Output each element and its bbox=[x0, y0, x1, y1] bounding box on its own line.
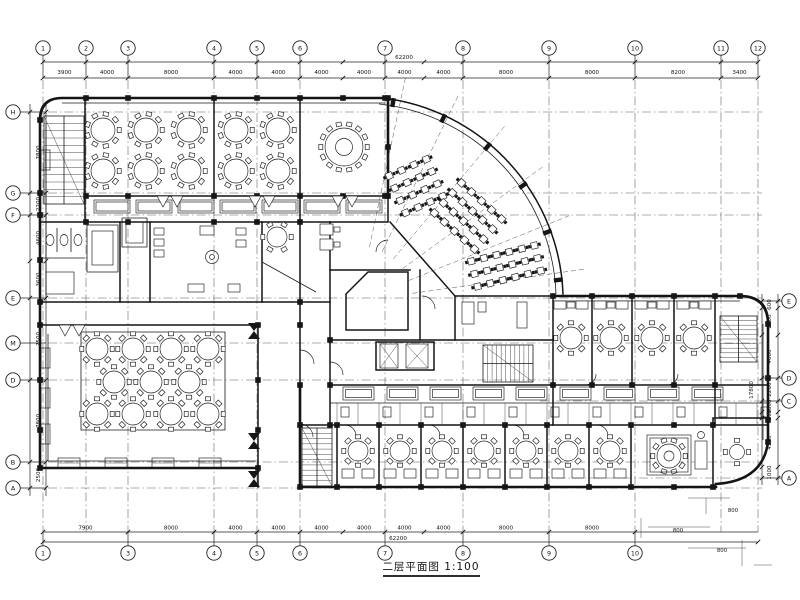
corridor-floor-mat bbox=[692, 387, 723, 400]
vestibule-fixture bbox=[509, 407, 517, 417]
grid-bubble-left-M: M bbox=[6, 336, 20, 350]
svg-text:D: D bbox=[787, 374, 792, 382]
grid-bubble-top-11: 11 bbox=[714, 41, 728, 55]
sofa bbox=[635, 301, 647, 309]
lounge-furniture bbox=[478, 302, 486, 312]
elevator-car bbox=[406, 344, 428, 368]
corridor-floor-mat bbox=[430, 387, 461, 400]
lounge-furniture bbox=[200, 226, 214, 235]
column bbox=[628, 484, 634, 490]
lounge-furniture bbox=[334, 227, 340, 232]
dim-label-bottom: 4000 bbox=[271, 526, 286, 532]
lounge-furniture bbox=[188, 284, 204, 292]
dim-label-top: 8000 bbox=[585, 70, 600, 76]
vestibule-fixture bbox=[425, 407, 433, 417]
column bbox=[586, 484, 592, 490]
grid-bubble-left-E: E bbox=[6, 291, 20, 305]
dim-label-top: 8000 bbox=[499, 70, 514, 76]
column bbox=[550, 293, 556, 299]
round-dining-table bbox=[116, 332, 150, 366]
lounge-furniture bbox=[228, 284, 240, 292]
column bbox=[589, 293, 595, 299]
window bbox=[58, 458, 80, 468]
sofa bbox=[362, 469, 374, 478]
drawing-title: 二层平面图 1:100 bbox=[382, 561, 479, 573]
column bbox=[37, 377, 43, 383]
round-dining-table bbox=[154, 397, 188, 431]
door-swing-arc bbox=[330, 362, 343, 375]
column bbox=[37, 465, 43, 471]
lounge-furniture bbox=[320, 224, 333, 235]
column bbox=[460, 484, 466, 490]
dim-label-bottom: 4000 bbox=[397, 526, 412, 532]
svg-text:9: 9 bbox=[547, 549, 551, 557]
round-dining-table bbox=[426, 435, 458, 467]
svg-text:1: 1 bbox=[41, 44, 45, 52]
vestibule-fixture bbox=[551, 407, 559, 417]
dim-label-bottom: 4000 bbox=[314, 526, 329, 532]
dim-total-right: 17800 bbox=[749, 381, 755, 399]
dimension-annotations: 3900400080004000400040004000400040008000… bbox=[6, 41, 796, 560]
column bbox=[550, 382, 556, 388]
round-dining-table bbox=[80, 397, 114, 431]
dim-label-top: 4000 bbox=[436, 70, 451, 76]
column bbox=[255, 465, 261, 471]
toilet-fixture bbox=[46, 235, 54, 246]
dim-label-top: 8000 bbox=[164, 70, 179, 76]
round-dining-table bbox=[172, 365, 206, 399]
svg-text:4: 4 bbox=[212, 549, 216, 557]
sofa bbox=[699, 301, 711, 309]
column bbox=[502, 484, 508, 490]
grid-bubble-bottom-1: 1 bbox=[36, 546, 50, 560]
svg-text:G: G bbox=[11, 189, 16, 197]
vestibule-fixture bbox=[593, 407, 601, 417]
toilet-fixture bbox=[60, 235, 68, 246]
column bbox=[255, 427, 261, 433]
corridor-booth-window bbox=[136, 200, 172, 213]
column bbox=[765, 439, 771, 445]
svg-text:H: H bbox=[11, 108, 16, 116]
sofa bbox=[677, 301, 689, 309]
column bbox=[765, 321, 771, 327]
lounge-furniture bbox=[154, 239, 164, 246]
sofa bbox=[614, 469, 626, 478]
column bbox=[125, 193, 131, 199]
corridor-floor-mat bbox=[604, 387, 635, 400]
svg-text:6: 6 bbox=[298, 44, 302, 52]
staircase bbox=[483, 345, 533, 382]
lounge-furniture bbox=[334, 242, 340, 247]
column bbox=[37, 299, 43, 305]
column bbox=[211, 219, 217, 225]
lounge-furniture bbox=[154, 250, 164, 257]
column bbox=[340, 95, 346, 101]
curtain-wall-mullion bbox=[483, 142, 492, 152]
grid-bubble-top-4: 4 bbox=[207, 41, 221, 55]
column bbox=[327, 337, 333, 343]
corridor-booth-window bbox=[94, 200, 130, 213]
svg-text:A: A bbox=[11, 484, 16, 492]
lounge-furniture bbox=[154, 228, 164, 235]
column bbox=[37, 257, 43, 263]
round-dining-table bbox=[134, 365, 168, 399]
toilet-fixture bbox=[74, 235, 82, 246]
svg-text:8: 8 bbox=[461, 549, 465, 557]
round-dining-table bbox=[85, 112, 121, 149]
corridor-floor-mat bbox=[560, 387, 591, 400]
grid-bubble-right-D: D bbox=[782, 371, 796, 385]
column bbox=[297, 193, 303, 199]
column bbox=[37, 322, 43, 328]
svg-text:2: 2 bbox=[84, 44, 88, 52]
corridor-booth-window bbox=[304, 200, 340, 213]
column bbox=[297, 422, 303, 428]
svg-text:B: B bbox=[11, 458, 15, 466]
sofa bbox=[616, 301, 628, 309]
detail-dim-label: 800 bbox=[728, 508, 739, 514]
round-dining-table bbox=[85, 153, 121, 190]
round-dining-table bbox=[319, 122, 369, 172]
sofa bbox=[384, 469, 396, 478]
svg-text:8: 8 bbox=[461, 44, 465, 52]
sofa bbox=[468, 469, 480, 478]
lounge-furniture bbox=[236, 228, 246, 235]
round-dining-table bbox=[594, 435, 626, 467]
dim-total-bottom: 62200 bbox=[389, 536, 407, 542]
cabinet bbox=[126, 222, 143, 243]
svg-text:12: 12 bbox=[754, 44, 762, 52]
sofa bbox=[342, 469, 354, 478]
trellis-feature bbox=[346, 272, 408, 330]
grid-bubble-left-D: D bbox=[6, 373, 20, 387]
staircase bbox=[720, 316, 757, 362]
sofa bbox=[594, 469, 606, 478]
column bbox=[297, 382, 303, 388]
dim-label-bottom: 4000 bbox=[357, 526, 372, 532]
round-dining-table bbox=[552, 435, 584, 467]
dim-label-top: 4000 bbox=[397, 70, 412, 76]
door-leaf bbox=[59, 325, 71, 336]
round-dining-table bbox=[384, 435, 416, 467]
round-dining-table bbox=[468, 435, 500, 467]
svg-text:3: 3 bbox=[126, 44, 130, 52]
staircase bbox=[302, 428, 332, 486]
sofa bbox=[426, 469, 438, 478]
dim-label-right: 1000 bbox=[767, 465, 773, 480]
dim-label-top: 4000 bbox=[228, 70, 243, 76]
sofa bbox=[576, 301, 588, 309]
column bbox=[83, 95, 89, 101]
round-dining-table bbox=[260, 153, 296, 190]
grid-bubble-top-9: 9 bbox=[542, 41, 556, 55]
grid-bubble-bottom-10: 10 bbox=[628, 546, 642, 560]
column bbox=[297, 299, 303, 305]
sofa bbox=[657, 301, 669, 309]
radial-setout-line bbox=[402, 167, 542, 269]
curtain-wall-mullion bbox=[542, 228, 552, 235]
dim-label-right: 600 bbox=[767, 299, 773, 310]
grid-bubble-left-F: F bbox=[6, 208, 20, 222]
svg-text:10: 10 bbox=[631, 549, 639, 557]
svg-text:E: E bbox=[787, 297, 791, 305]
dim-label-top: 8200 bbox=[671, 70, 686, 76]
corridor-floor-mat bbox=[516, 387, 547, 400]
column bbox=[765, 375, 771, 381]
grid-bubble-bottom-5: 5 bbox=[250, 546, 264, 560]
dim-label-bottom: 7900 bbox=[78, 526, 93, 532]
svg-text:4: 4 bbox=[212, 44, 216, 52]
round-dining-table bbox=[594, 321, 628, 355]
door-leaf bbox=[73, 325, 85, 336]
column bbox=[710, 484, 716, 490]
lounge-furniture bbox=[462, 302, 474, 324]
corridor-floor-mat bbox=[387, 387, 418, 400]
terrace-table-cluster bbox=[382, 154, 450, 219]
window bbox=[152, 458, 174, 468]
grid-bubble-right-A: A bbox=[782, 471, 796, 485]
column bbox=[544, 484, 550, 490]
door-swing-arc bbox=[376, 240, 388, 252]
column bbox=[334, 484, 340, 490]
round-dining-table bbox=[154, 332, 188, 366]
window bbox=[41, 424, 50, 444]
round-dining-table bbox=[677, 321, 711, 355]
door-swing-arc bbox=[513, 425, 524, 436]
svg-text:6: 6 bbox=[298, 549, 302, 557]
corridor-booth-window bbox=[178, 200, 214, 213]
svg-text:3: 3 bbox=[126, 549, 130, 557]
svg-text:M: M bbox=[10, 339, 16, 347]
corridor-floor-mat bbox=[648, 387, 679, 400]
lounge-furniture bbox=[236, 240, 246, 247]
sofa bbox=[488, 469, 500, 478]
column bbox=[385, 193, 391, 199]
column bbox=[37, 117, 43, 123]
round-dining-table bbox=[191, 397, 225, 431]
column bbox=[37, 427, 43, 433]
vestibule-fixture bbox=[467, 407, 475, 417]
sofa bbox=[572, 469, 584, 478]
svg-text:C: C bbox=[787, 397, 792, 405]
grid-bubble-right-C: C bbox=[782, 394, 796, 408]
dim-total-top: 62200 bbox=[395, 55, 413, 61]
svg-text:1: 1 bbox=[41, 549, 45, 557]
vestibule-fixture bbox=[383, 407, 391, 417]
round-dining-table bbox=[723, 438, 750, 465]
round-dining-table bbox=[171, 153, 207, 190]
grid-bubble-top-12: 12 bbox=[751, 41, 765, 55]
svg-text:11: 11 bbox=[717, 44, 725, 52]
dim-label-top: 4000 bbox=[271, 70, 286, 76]
column bbox=[629, 293, 635, 299]
sofa bbox=[695, 441, 707, 469]
column bbox=[211, 95, 217, 101]
tiled-floor bbox=[46, 272, 74, 294]
svg-text:7: 7 bbox=[383, 549, 387, 557]
dim-label-bottom: 8000 bbox=[499, 526, 514, 532]
detail-dim-label: 800 bbox=[673, 528, 684, 534]
grid-bubble-top-7: 7 bbox=[378, 41, 392, 55]
round-dining-table bbox=[260, 112, 296, 149]
column bbox=[37, 212, 43, 218]
sofa bbox=[594, 301, 606, 309]
column bbox=[255, 377, 261, 383]
column bbox=[254, 219, 260, 225]
vestibule-fixture bbox=[635, 407, 643, 417]
dim-label-top: 3400 bbox=[732, 70, 747, 76]
column bbox=[83, 219, 89, 225]
svg-text:5: 5 bbox=[255, 44, 259, 52]
window bbox=[105, 458, 127, 468]
round-dining-table bbox=[651, 438, 687, 474]
svg-text:7: 7 bbox=[383, 44, 387, 52]
curtain-wall-mullion bbox=[554, 277, 563, 282]
sofa bbox=[404, 469, 416, 478]
grid-bubble-top-10: 10 bbox=[628, 41, 642, 55]
feature-wall-panel bbox=[92, 231, 113, 265]
round-dining-table bbox=[218, 153, 254, 190]
column bbox=[327, 422, 333, 428]
grid-bubble-top-8: 8 bbox=[456, 41, 470, 55]
corridor-floor-mat bbox=[473, 387, 504, 400]
grid-bubble-top-5: 5 bbox=[250, 41, 264, 55]
column bbox=[297, 322, 303, 328]
grid-bubble-left-H: H bbox=[6, 105, 20, 119]
grid-bubble-left-A: A bbox=[6, 481, 20, 495]
corridor-floor-mat bbox=[343, 387, 374, 400]
round-dining-table bbox=[80, 332, 114, 366]
column bbox=[297, 219, 303, 225]
grid-bubble-top-2: 2 bbox=[79, 41, 93, 55]
door-swing-arc bbox=[300, 350, 314, 364]
door-swing-arc bbox=[429, 425, 440, 436]
grid-bubble-bottom-4: 4 bbox=[207, 546, 221, 560]
column bbox=[671, 484, 677, 490]
svg-text:5: 5 bbox=[255, 549, 259, 557]
elevator-car bbox=[380, 344, 398, 368]
round-dining-table bbox=[261, 222, 293, 253]
round-dining-table bbox=[128, 112, 164, 149]
dim-label-bottom: 8000 bbox=[164, 526, 179, 532]
dim-label-bottom: 4000 bbox=[228, 526, 243, 532]
column bbox=[712, 293, 718, 299]
column bbox=[37, 190, 43, 196]
round-dining-table bbox=[342, 435, 374, 467]
grid-bubble-bottom-8: 8 bbox=[456, 546, 470, 560]
grid-bubble-bottom-6: 6 bbox=[293, 546, 307, 560]
svg-text:D: D bbox=[11, 376, 16, 384]
corridor-booth-window bbox=[220, 200, 256, 213]
grid-bubble-bottom-3: 3 bbox=[121, 546, 135, 560]
svg-text:A: A bbox=[787, 474, 792, 482]
column bbox=[671, 293, 677, 299]
round-dining-table bbox=[116, 397, 150, 431]
round-dining-table bbox=[171, 112, 207, 149]
column bbox=[254, 95, 260, 101]
column bbox=[211, 193, 217, 199]
dim-label-top: 4000 bbox=[100, 70, 115, 76]
svg-text:10: 10 bbox=[631, 44, 639, 52]
round-dining-table bbox=[128, 153, 164, 190]
svg-text:E: E bbox=[11, 294, 15, 302]
sofa bbox=[552, 469, 564, 478]
curtain-wall-mullion bbox=[518, 181, 528, 190]
svg-text:9: 9 bbox=[547, 44, 551, 52]
round-dining-table bbox=[97, 365, 131, 399]
sofa bbox=[510, 469, 522, 478]
round-dining-table bbox=[510, 435, 542, 467]
door-swing-arc bbox=[597, 425, 608, 436]
vestibule-fixture bbox=[719, 407, 727, 417]
dim-label-bottom: 4000 bbox=[436, 526, 451, 532]
floor-plan-drawing: 3900400080004000400040004000400040008000… bbox=[0, 0, 800, 600]
vestibule-fixture bbox=[341, 407, 349, 417]
column bbox=[385, 144, 391, 150]
grid-bubble-bottom-7: 7 bbox=[378, 546, 392, 560]
sofa bbox=[530, 469, 542, 478]
drawing-sheet: 3900400080004000400040004000400040008000… bbox=[0, 0, 800, 600]
door-swing-arc bbox=[345, 425, 356, 436]
window bbox=[41, 388, 50, 408]
lounge-table bbox=[206, 251, 219, 264]
detail-dim-label: 800 bbox=[717, 548, 728, 554]
dim-label-top: 3900 bbox=[57, 70, 72, 76]
column bbox=[327, 382, 333, 388]
column bbox=[376, 484, 382, 490]
column bbox=[737, 293, 743, 299]
grid-bubble-bottom-9: 9 bbox=[542, 546, 556, 560]
sofa bbox=[446, 469, 458, 478]
column bbox=[418, 484, 424, 490]
window bbox=[199, 458, 221, 468]
column bbox=[671, 422, 677, 428]
grid-bubble-left-B: B bbox=[6, 455, 20, 469]
round-dining-table bbox=[554, 321, 588, 355]
grid-bubble-right-E: E bbox=[782, 294, 796, 308]
svg-text:F: F bbox=[11, 211, 15, 219]
window bbox=[41, 348, 50, 368]
round-dining-table bbox=[218, 112, 254, 149]
service-panel bbox=[517, 302, 527, 328]
grid-bubble-top-3: 3 bbox=[121, 41, 135, 55]
sofa bbox=[554, 301, 566, 309]
vestibule-fixture bbox=[677, 407, 685, 417]
column bbox=[125, 95, 131, 101]
lounge-furniture bbox=[320, 239, 333, 250]
curtain-wall-mullion bbox=[439, 113, 447, 123]
grid-bubble-top-1: 1 bbox=[36, 41, 50, 55]
round-dining-table bbox=[191, 332, 225, 366]
dim-label-bottom: 8000 bbox=[585, 526, 600, 532]
terrace-table-cluster bbox=[427, 176, 508, 256]
round-dining-table bbox=[635, 321, 669, 355]
grid-bubble-top-6: 6 bbox=[293, 41, 307, 55]
column bbox=[297, 95, 303, 101]
column bbox=[765, 417, 771, 423]
grid-bubble-left-G: G bbox=[6, 186, 20, 200]
dim-label-top: 4000 bbox=[357, 70, 372, 76]
dim-label-top: 4000 bbox=[314, 70, 329, 76]
